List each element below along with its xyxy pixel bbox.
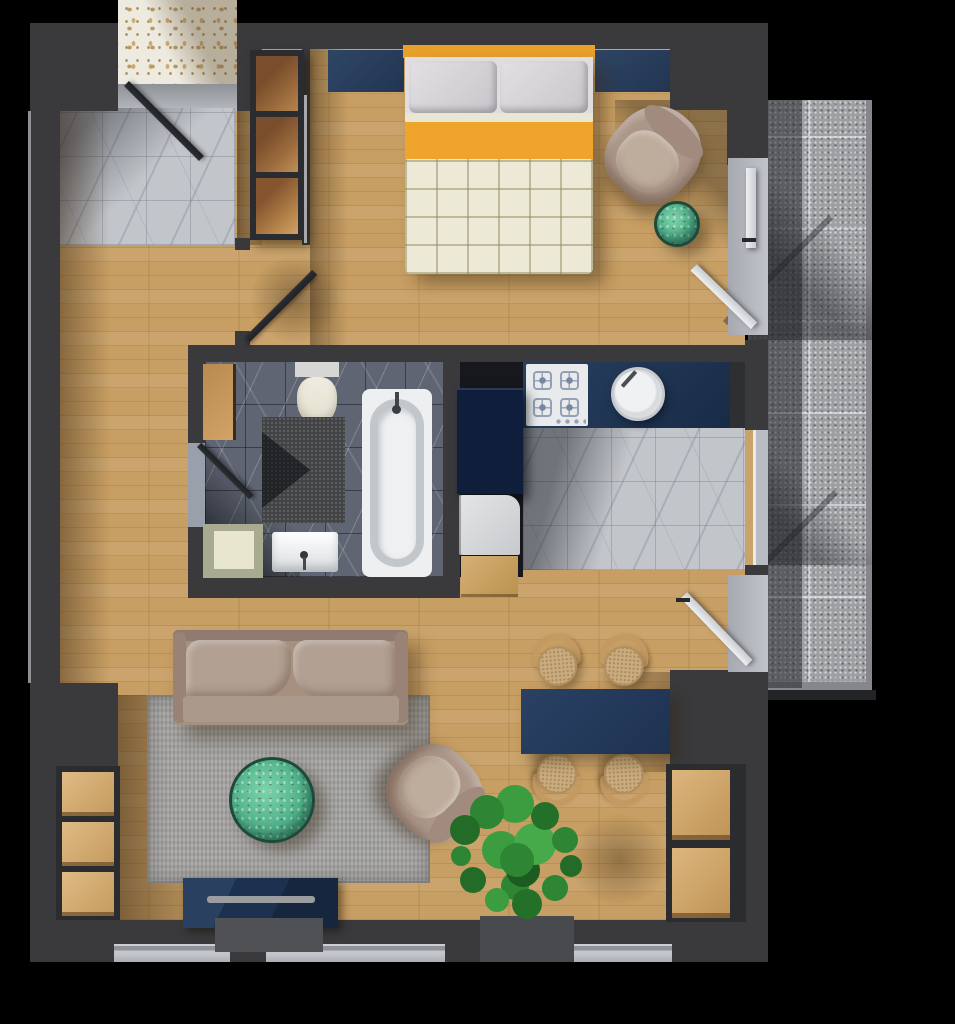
wardrobe-shelf-1 <box>256 56 298 111</box>
right-cabinet <box>666 764 746 922</box>
wall-stub-door-top <box>235 238 250 250</box>
sofa-back-cushion-right <box>293 640 396 698</box>
floor-plan-stage <box>0 0 955 1024</box>
kitchen-window-sill-wood <box>745 430 753 565</box>
hob-burner-3 <box>533 398 552 417</box>
green-side-table <box>654 201 700 247</box>
bedroom-balcony-door-handle <box>742 238 756 242</box>
wall-entry-left <box>30 23 118 111</box>
bedroom-door-shadow <box>250 255 340 343</box>
wall-corner-ne-a <box>670 23 727 110</box>
left-sideboard-cubby-3 <box>62 872 114 916</box>
sofa-back-cushion-left <box>186 640 291 698</box>
wall-left-pier <box>30 683 118 770</box>
potted-plant-foliage <box>500 843 534 877</box>
window-sill-1 <box>114 944 230 962</box>
toilet-tank <box>295 362 339 377</box>
dishwasher <box>459 495 520 555</box>
living-balcony-door-handle <box>676 598 690 602</box>
wall-bath-kitchen-top <box>188 345 745 362</box>
wardrobe <box>250 50 304 240</box>
wall-right-lower <box>745 672 768 962</box>
left-sideboard <box>56 766 120 920</box>
bedroom-balcony-door-fixed <box>746 168 756 248</box>
laundry-tray <box>203 524 263 578</box>
bed-orange-band <box>405 122 593 159</box>
bathroom-wood-cabinet <box>203 364 236 440</box>
wall-left-edge-light <box>28 111 31 683</box>
gas-hob <box>526 364 588 426</box>
dining-table <box>521 689 670 754</box>
sofa <box>173 630 408 725</box>
double-bed <box>405 57 593 274</box>
wardrobe-shelf-3 <box>256 178 298 234</box>
washbasin-faucet-stem <box>303 557 306 570</box>
shower-mat-shadow <box>262 417 345 523</box>
headboard-panel-right <box>595 50 670 92</box>
wall-left <box>30 111 60 683</box>
sofa-seat-front <box>183 696 399 722</box>
kitchen-stool <box>461 556 518 597</box>
wall-bath-bottom <box>188 577 460 598</box>
dining-chair-1 <box>531 632 584 694</box>
hob-burner-4 <box>560 398 579 417</box>
kitchen-floor-shadow <box>523 428 658 570</box>
bathtub-faucet-knob <box>392 405 401 414</box>
shower-mat <box>262 417 345 523</box>
hall-wall-shadow <box>58 111 110 686</box>
headboard-panel-left <box>328 50 404 92</box>
right-cabinet-cubby-1 <box>672 770 730 840</box>
terrazzo-shadow <box>118 0 237 84</box>
hob-burner-2 <box>560 371 579 390</box>
bed-sheet-strip <box>405 113 593 122</box>
wardrobe-edge-light <box>304 95 307 243</box>
wall-corner-ne-b <box>727 23 768 165</box>
dining-chair-2 <box>598 632 650 693</box>
wardrobe-shelf-2 <box>256 117 298 172</box>
tv-stand-base <box>215 918 323 952</box>
wall-right-kitchen <box>745 340 768 430</box>
bathroom-doorway-floor <box>188 443 205 527</box>
wall-dining-pier <box>670 670 748 768</box>
pillow-right <box>500 61 588 113</box>
bathtub <box>362 389 432 577</box>
hob-burner-1 <box>533 371 552 390</box>
wall-corner-sw <box>30 918 116 962</box>
hob-knobs <box>554 419 586 424</box>
dining-chair-3 <box>531 746 583 807</box>
laundry-tray-inner <box>214 531 254 569</box>
bathtub-basin <box>370 399 424 567</box>
pillow-left <box>409 61 497 113</box>
bed-quilt <box>405 159 593 274</box>
coffee-table <box>229 757 315 843</box>
dining-chair-4 <box>599 747 650 807</box>
kitchen-window-glass <box>753 430 768 565</box>
right-cabinet-cubby-2 <box>672 848 730 918</box>
soundbar <box>207 896 315 903</box>
left-sideboard-cubby-1 <box>62 772 114 816</box>
fridge-tall-unit <box>457 388 523 494</box>
left-sideboard-cubby-2 <box>62 822 114 866</box>
kitchen-sink <box>611 367 665 421</box>
plant-pot <box>480 916 574 962</box>
